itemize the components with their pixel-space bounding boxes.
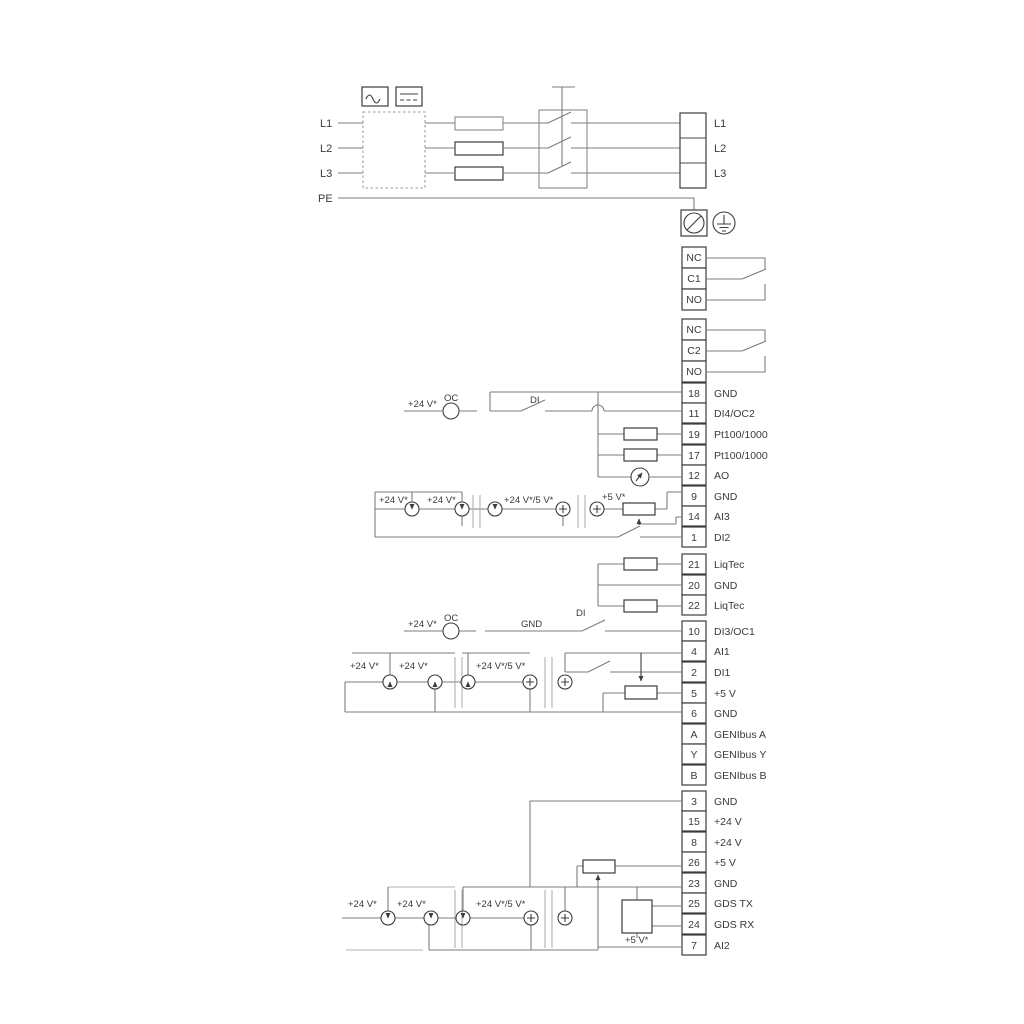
terminal-group-3: 10 DI3/OC1 4 AI1 2 DI1 5 +5 V 6 GND A GE… [682,621,767,785]
ai1-options-row: +24 V* +24 V* +24 V*/5 V* [345,653,682,712]
potentiometer-ai2 [583,860,615,873]
terminal-3-label: GND [714,796,738,808]
terminal-2-num: 2 [691,667,697,679]
gnd-label-di3: GND [521,619,542,630]
v24-label-ai3-2: +24 V* [427,495,456,506]
relay1-nc-label: NC [686,252,702,264]
relay2-nc-label: NC [686,324,702,336]
v24-label-di3: +24 V* [408,619,437,630]
power-out-label-l2: L2 [714,143,726,155]
terminal-17-num: 17 [688,450,700,462]
terminal-26-label: +5 V [714,857,736,869]
terminal-9-num: 9 [691,491,697,503]
terminal-15-label: +24 V [714,816,742,828]
liqtec-resistor-21 [624,558,657,570]
potentiometer-ai1 [625,686,657,699]
power-terminal-block [680,113,706,188]
terminal-19-label: Pt100/1000 [714,429,768,441]
pe-label: PE [318,193,333,205]
terminal-b-num: B [690,770,697,782]
terminal-12-label: AO [714,470,729,482]
v24-label-ai2-1: +24 V* [348,899,377,910]
power-wires [338,112,694,210]
terminal-17-label: Pt100/1000 [714,450,768,462]
power-line-label-l1: L1 [320,118,332,130]
v24-label-ai2-2: +24 V* [397,899,426,910]
relay2-contact-icon [706,330,766,372]
relay1-no-label: NO [686,294,702,306]
terminal-4-label: AI1 [714,646,730,658]
terminal-group-1: 18 GND 11 DI4/OC2 19 Pt100/1000 17 Pt100… [682,383,768,547]
terminal-6-num: 6 [691,708,697,720]
plus-glyph [559,505,567,513]
power-line-label-l3: L3 [320,168,332,180]
terminal-20-num: 20 [688,580,700,592]
v24-5-label-ai3: +24 V*/5 V* [504,495,554,506]
terminal-4-num: 4 [691,646,697,658]
relay-1: NC C1 NO [682,247,766,310]
terminal-1-num: 1 [691,532,697,544]
power-out-label-l3: L3 [714,168,726,180]
ai3-options-row: +24 V* +24 V* +24 V*/5 V* +5 V* [375,492,682,537]
v24-label-ai1-1: +24 V* [350,661,379,672]
v24-label-ai3-1: +24 V* [379,495,408,506]
liqtec-resistor-22 [624,600,657,612]
plus-glyph [561,678,569,686]
terminal-a-num: A [690,729,697,741]
plus-glyph [526,678,534,686]
fuse-l3 [455,167,503,180]
terminal-25-num: 25 [688,898,700,910]
ac-symbol-box [362,87,388,106]
ao-meter-icon [631,468,649,486]
wiring-diagram: L1 L2 L3 PE L1 L2 L3 [0,0,1024,1024]
terminal-10-label: DI3/OC1 [714,626,755,638]
terminal-b-label: GENIbus B [714,770,767,782]
v24-label-ai1-2: +24 V* [399,661,428,672]
power-out-label-l1: L1 [714,118,726,130]
di3-row: +24 V* OC GND DI [404,608,682,639]
plus-glyph [561,914,569,922]
plus-glyph [527,914,535,922]
terminal-8-label: +24 V [714,837,742,849]
terminal-8-num: 8 [691,837,697,849]
terminal-11-label: DI4/OC2 [714,408,755,420]
relay2-no-label: NO [686,366,702,378]
v24-5-label-ai1: +24 V*/5 V* [476,661,526,672]
disconnect-switch-box [539,110,587,188]
terminal-6-label: GND [714,708,738,720]
terminal-a-label: GENIbus A [714,729,766,741]
terminal-11-num: 11 [689,408,700,420]
power-line-label-l2: L2 [320,143,332,155]
terminal-7-num: 7 [691,940,697,952]
terminal-14-label: AI3 [714,511,730,523]
terminal-group-2: 21 LiqTec 20 GND 22 LiqTec [598,554,744,615]
terminal-1-label: DI2 [714,532,731,544]
terminal-10-num: 10 [688,626,700,638]
terminal-22-label: LiqTec [714,600,744,612]
terminal-19-num: 19 [688,429,700,441]
terminal-y-num: Y [690,749,697,761]
terminal-18-label: GND [714,388,738,400]
terminal-21-num: 21 [688,559,700,571]
terminal-21-label: LiqTec [714,559,744,571]
terminal-15-num: 15 [688,816,700,828]
terminal-7-label: AI2 [714,940,730,952]
relay-2: NC C2 NO [682,319,766,382]
terminal-23-num: 23 [688,878,700,890]
terminal-24-num: 24 [688,919,700,931]
relay1-c1-label: C1 [687,273,701,285]
terminal-y-label: GENIbus Y [714,749,766,761]
gds-sensor-box [622,900,652,933]
terminal-14-num: 14 [688,511,700,523]
v24-label-di4: +24 V* [408,399,437,410]
terminal-18-num: 18 [688,388,700,400]
resistor-pt100-19 [624,428,657,440]
terminal-26-num: 26 [688,857,700,869]
relay1-contact-icon [706,258,766,300]
v24-5-label-ai2: +24 V*/5 V* [476,899,526,910]
terminal-group-4: 3 GND 15 +24 V 8 +24 V 26 +5 V 23 GND 25… [682,791,754,955]
fuse-l2 [455,142,503,155]
earth-icon-glyph [717,215,731,231]
v5-label-ai3: +5 V* [602,492,626,503]
di-label-di3: DI [576,608,586,619]
terminal-25-label: GDS TX [714,898,753,910]
oc-label-di4: OC [444,393,458,404]
filter-box [363,112,425,188]
relay2-c2-label: C2 [687,345,701,357]
oc-output-icon-di4 [443,403,459,419]
group1-wiring: +24 V* OC DI [404,392,682,486]
power-input-section: L1 L2 L3 PE L1 L2 L3 [318,87,735,236]
terminal-2-label: DI1 [714,667,731,679]
potentiometer-ai3 [623,503,655,515]
ao-meter-needle [636,473,642,481]
terminal-9-label: GND [714,491,738,503]
fuse-l1 [455,117,503,130]
terminal-5-label: +5 V [714,688,736,700]
terminal-3-num: 3 [691,796,697,808]
terminal-12-num: 12 [688,470,700,482]
wiring-diagram-page: L1 L2 L3 PE L1 L2 L3 [0,0,1024,1024]
dc-symbol-box [396,87,422,106]
oc-label-di3: OC [444,613,458,624]
ai2-options-row: +24 V* +24 V* +24 V*/5 V* +5 V* [342,801,682,950]
plus-glyph [593,505,601,513]
terminal-20-label: GND [714,580,738,592]
oc-output-icon-di3 [443,623,459,639]
terminal-24-label: GDS RX [714,919,754,931]
resistor-pt100-17 [624,449,657,461]
terminal-5-num: 5 [691,688,697,700]
terminal-23-label: GND [714,878,738,890]
terminal-22-num: 22 [688,600,700,612]
